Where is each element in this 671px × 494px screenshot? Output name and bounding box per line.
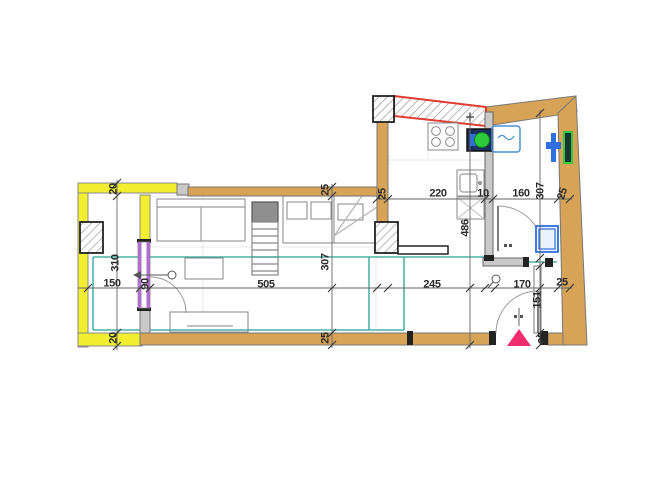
loft-stairs — [252, 202, 278, 275]
counter-bar — [398, 246, 448, 254]
tv-stand — [170, 312, 248, 332]
floor-plan-canvas: 20 310 150 90 20 505 307 25 25 25 220 10… — [0, 0, 671, 494]
dim-kitchen-wall: 25 — [378, 188, 389, 199]
bottom-wall-main — [140, 333, 490, 345]
dim-entry-bottom: 25 — [538, 332, 549, 343]
balcony-partition-upper — [140, 195, 150, 242]
dim-kitchen-depth: 486 — [461, 219, 472, 236]
entrance-marker — [507, 329, 531, 346]
balcony-top-wall — [78, 183, 177, 193]
floor-plan-drawing — [0, 0, 671, 494]
wall-vent-green — [564, 132, 572, 163]
shower-unit — [536, 226, 558, 252]
dim-balcony-width: 150 — [103, 279, 120, 290]
balcony-window-block — [80, 222, 103, 253]
living-top-wall — [188, 187, 378, 196]
washbasin — [492, 126, 520, 152]
sofa — [157, 199, 245, 241]
stove — [428, 123, 458, 150]
boiler — [467, 129, 492, 151]
dim-partition: 10 — [477, 189, 488, 200]
dim-kitchen-width: 220 — [429, 189, 446, 200]
dim-living-bottom: 25 — [321, 332, 332, 343]
dim-bath-width: 160 — [512, 189, 529, 200]
dim-balcony-door: 90 — [141, 278, 152, 289]
balcony-partition-lower — [140, 310, 150, 335]
coffee-table — [185, 258, 223, 279]
dim-living-depth: 307 — [321, 253, 332, 270]
kitchen-left-wall — [377, 122, 388, 222]
dim-entry-depth: 151 — [533, 291, 544, 308]
dim-entry-width: 170 — [513, 280, 530, 291]
column-top — [373, 96, 394, 122]
dim-balcony-top: 20 — [109, 183, 120, 194]
hall-symbol — [488, 275, 500, 288]
dim-balcony-bottom: 20 — [109, 332, 120, 343]
balcony-left-wall — [78, 183, 88, 347]
red-demolition-wall — [394, 96, 486, 126]
dim-bath-depth: 307 — [536, 182, 547, 199]
bed — [283, 196, 377, 243]
dim-hall-width: 245 — [423, 280, 440, 291]
column-mid — [375, 222, 398, 253]
fixtures — [428, 123, 572, 252]
dim-balcony-depth: 310 — [111, 254, 122, 271]
dishwasher — [457, 197, 484, 219]
dim-living-width: 505 — [257, 280, 274, 291]
dim-entry-wall: 25 — [556, 278, 567, 289]
wall-joint — [177, 184, 189, 195]
dim-living-top: 25 — [321, 184, 332, 195]
